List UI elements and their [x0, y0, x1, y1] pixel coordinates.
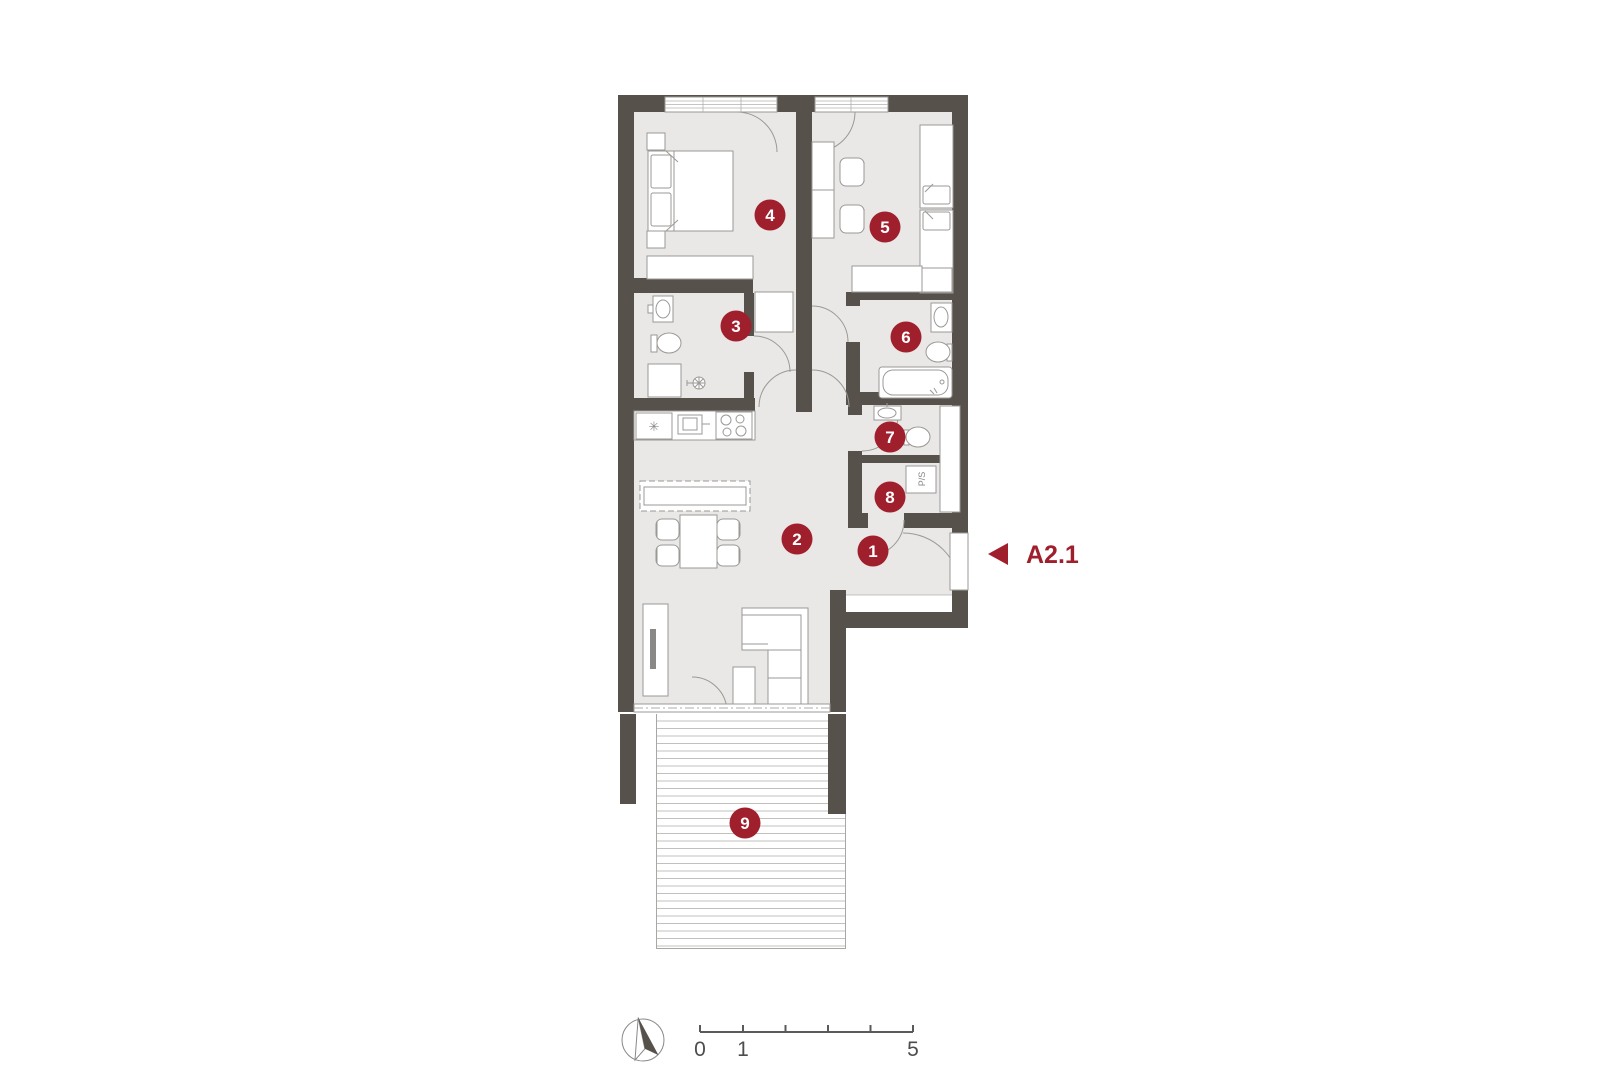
pillow: [651, 155, 671, 188]
svg-text:1: 1: [868, 542, 877, 561]
north-arrow-icon: [622, 1015, 664, 1061]
chair: [656, 519, 679, 540]
toilet-tank: [651, 335, 657, 352]
svg-text:4: 4: [765, 206, 775, 225]
wardrobe: [852, 266, 922, 292]
room-marker-7: 7: [875, 422, 906, 453]
toilet-icon: [657, 333, 681, 353]
pillow: [923, 212, 950, 230]
room-marker-6: 6: [891, 322, 922, 353]
chair: [840, 158, 864, 186]
svg-text:9: 9: [740, 814, 749, 833]
windows: [665, 97, 888, 112]
room-marker-4: 4: [755, 200, 786, 231]
shower-tray: [648, 364, 681, 397]
fridge-snowflake-icon: ✳: [649, 419, 660, 434]
svg-text:2: 2: [792, 530, 801, 549]
pillow: [923, 186, 950, 204]
toilet-icon: [926, 342, 950, 362]
nightstand: [647, 133, 665, 150]
closet: [755, 292, 793, 332]
scale-bar: 0 1 5: [694, 1025, 919, 1061]
svg-text:7: 7: [885, 428, 894, 447]
room-marker-8: 8: [875, 482, 906, 513]
wardrobe: [647, 256, 753, 279]
terrace-glass-wall: [634, 704, 830, 712]
scale-label-0: 0: [694, 1038, 706, 1061]
floor-plan-drawing: P/S ✳: [0, 0, 1613, 1080]
nightstand: [647, 231, 665, 248]
toilet-icon: [906, 427, 930, 447]
room-marker-1: 1: [858, 536, 889, 567]
room-marker-3: 3: [721, 311, 752, 342]
svg-text:8: 8: [885, 488, 894, 507]
coffee-table: [733, 667, 755, 709]
svg-text:6: 6: [901, 328, 910, 347]
floor-plan-page: P/S ✳: [0, 0, 1613, 1080]
pillow: [651, 193, 671, 226]
chair: [840, 205, 864, 233]
washer-label: P/S: [917, 472, 927, 487]
section-arrow-icon: [988, 543, 1008, 565]
service-shaft: [940, 406, 960, 512]
chair: [717, 545, 740, 566]
tv-icon: [650, 629, 656, 669]
section-label: A2.1: [1026, 541, 1079, 569]
svg-text:5: 5: [880, 218, 889, 237]
section-marker: A2.1: [988, 541, 1079, 569]
corner-closet: [922, 268, 952, 292]
room-marker-9: 9: [730, 808, 761, 839]
chair: [717, 519, 740, 540]
storage8-fixtures: P/S: [906, 466, 936, 493]
entrance-door: [950, 533, 968, 590]
dining-table: [680, 515, 717, 568]
stove-icon: [716, 412, 752, 439]
room-marker-2: 2: [782, 524, 813, 555]
scale-label-5: 5: [907, 1038, 919, 1061]
svg-text:3: 3: [731, 317, 740, 336]
faucet-icon: [648, 305, 653, 313]
chair: [656, 545, 679, 566]
scale-label-1: 1: [737, 1038, 749, 1061]
room-marker-5: 5: [870, 212, 901, 243]
